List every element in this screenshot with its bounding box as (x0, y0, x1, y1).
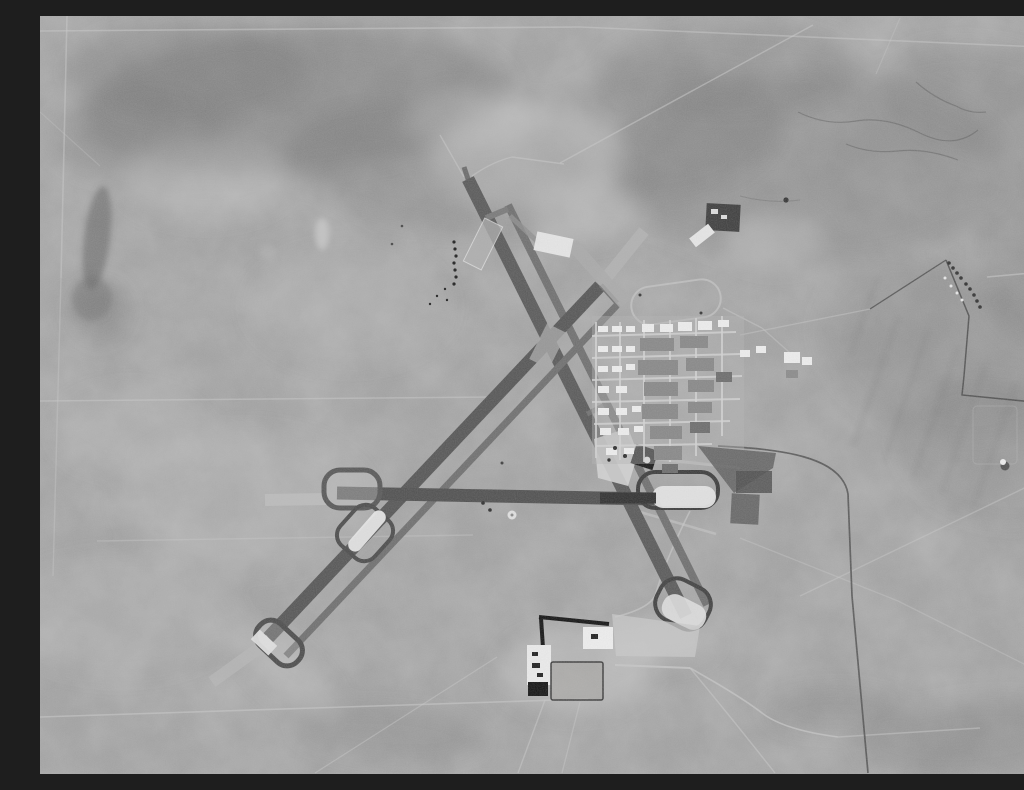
film-grain (40, 16, 1024, 774)
aerial-photo (40, 16, 1024, 774)
aerial-photo-canvas (40, 16, 1024, 774)
